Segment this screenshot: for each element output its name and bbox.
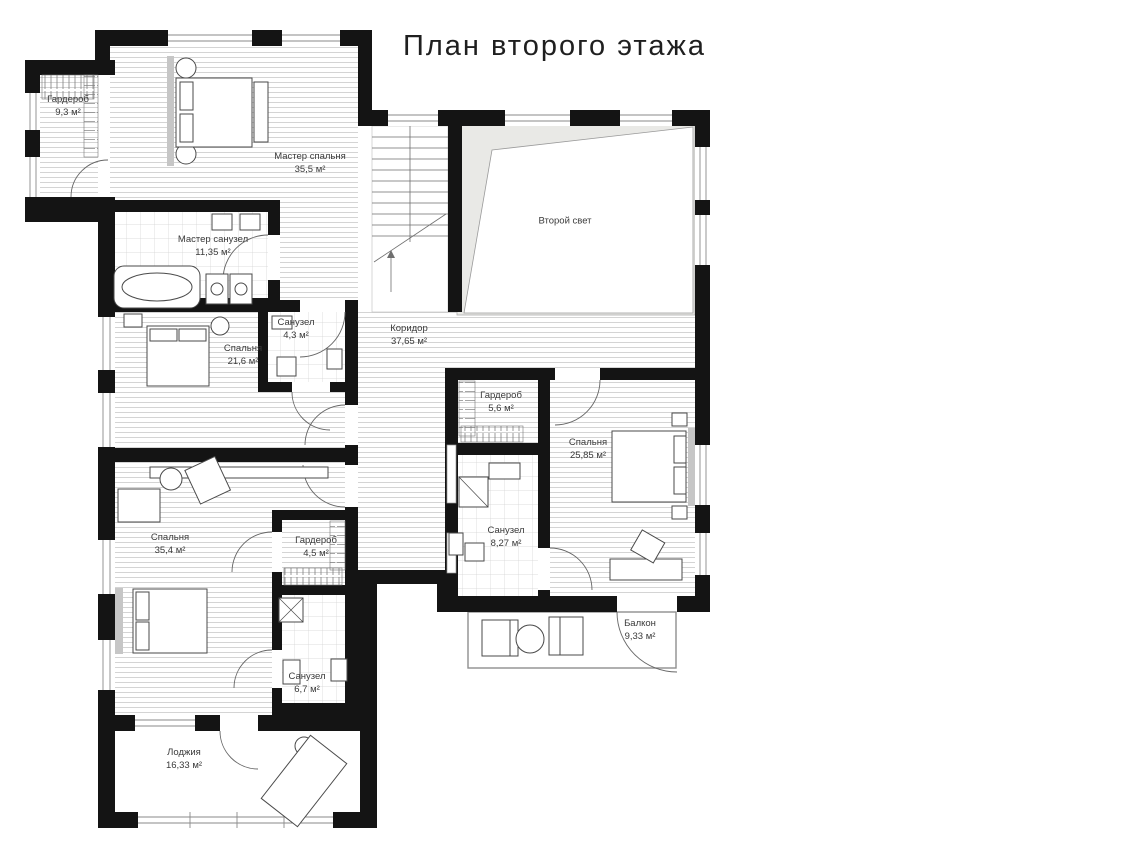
- room-area: 16,33 м²: [166, 760, 202, 773]
- room-area: 9,33 м²: [624, 631, 656, 644]
- toilet: [212, 214, 232, 230]
- room-area: 4,3 м²: [277, 330, 314, 343]
- room-name: Лоджия: [166, 747, 202, 760]
- room-area: 4,5 м²: [295, 548, 337, 561]
- room-name: Балкон: [624, 618, 656, 631]
- armchair: [118, 489, 160, 522]
- room-label-balcony: Балкон 9,33 м²: [624, 618, 656, 644]
- room-name: Второй свет: [538, 216, 591, 229]
- room-area: 35,5 м²: [274, 164, 346, 177]
- room-label-bedroom-4: Спальня 35,4 м²: [151, 532, 189, 558]
- wall-niche: [447, 445, 456, 503]
- room-name: Мастер санузел: [178, 234, 248, 247]
- room-area: 5,6 м²: [480, 403, 522, 416]
- room-label-bath-3: Санузел 8,27 м²: [487, 525, 524, 551]
- bidet: [240, 214, 260, 230]
- door-loggia: [220, 731, 258, 769]
- room-area: 8,27 м²: [487, 538, 524, 551]
- washer: [465, 543, 484, 561]
- room-name: Коридор: [390, 323, 428, 336]
- room-area: 11,35 м²: [178, 247, 248, 260]
- room-name: Санузел: [288, 671, 325, 684]
- room-label-loggia: Лоджия 16,33 м²: [166, 747, 202, 773]
- room-name: Санузел: [277, 317, 314, 330]
- sink: [489, 463, 520, 479]
- room-name: Гардероб: [480, 390, 522, 403]
- room-area: 37,65 м²: [390, 336, 428, 349]
- page-title: План второго этажа: [403, 30, 706, 63]
- coffee-table: [160, 468, 182, 490]
- toilet: [327, 349, 342, 369]
- room-label-bedroom-2: Спальня 21,6 м²: [224, 343, 262, 369]
- room-label-master-bedroom: Мастер спальня 35,5 м²: [274, 151, 346, 177]
- floor-plan-drawing: [0, 0, 1133, 842]
- room-label-void: Второй свет: [538, 216, 591, 229]
- room-label-corridor: Коридор 37,65 м²: [390, 323, 428, 349]
- room-area: 9,3 м²: [47, 107, 89, 120]
- room-name: Спальня: [224, 343, 262, 356]
- room-name: Спальня: [151, 532, 189, 545]
- nightstand: [672, 506, 687, 519]
- room-label-wardrobe-1: Гардероб 9,3 м²: [47, 94, 89, 120]
- room-name: Спальня: [569, 437, 607, 450]
- nightstand: [672, 413, 687, 426]
- room-label-wardrobe-2: Гардероб 5,6 м²: [480, 390, 522, 416]
- staircase: [372, 126, 448, 312]
- bench: [254, 82, 268, 142]
- chair: [549, 617, 583, 655]
- room-name: Санузел: [487, 525, 524, 538]
- room-area: 35,4 м²: [151, 545, 189, 558]
- toilet: [449, 533, 463, 555]
- room-area: 6,7 м²: [288, 684, 325, 697]
- floor-plan-page: План второго этажа Гардероб 9,3 м² Масте…: [0, 0, 1133, 842]
- nightstand: [124, 314, 142, 327]
- room-name: Мастер спальня: [274, 151, 346, 164]
- room-name: Гардероб: [295, 535, 337, 548]
- room-name: Гардероб: [47, 94, 89, 107]
- chair: [482, 620, 518, 656]
- sink: [331, 659, 347, 681]
- room-label-bath-2: Санузел 4,3 м²: [277, 317, 314, 343]
- desk: [610, 559, 682, 580]
- room-area: 21,6 м²: [224, 356, 262, 369]
- side-table: [211, 317, 229, 335]
- room-label-wardrobe-3: Гардероб 4,5 м²: [295, 535, 337, 561]
- room-label-master-bath: Мастер санузел 11,35 м²: [178, 234, 248, 260]
- room-label-bedroom-3: Спальня 25,85 м²: [569, 437, 607, 463]
- washer: [277, 357, 296, 376]
- room-area: 25,85 м²: [569, 450, 607, 463]
- round-table: [516, 625, 544, 653]
- room-label-bath-4: Санузел 6,7 м²: [288, 671, 325, 697]
